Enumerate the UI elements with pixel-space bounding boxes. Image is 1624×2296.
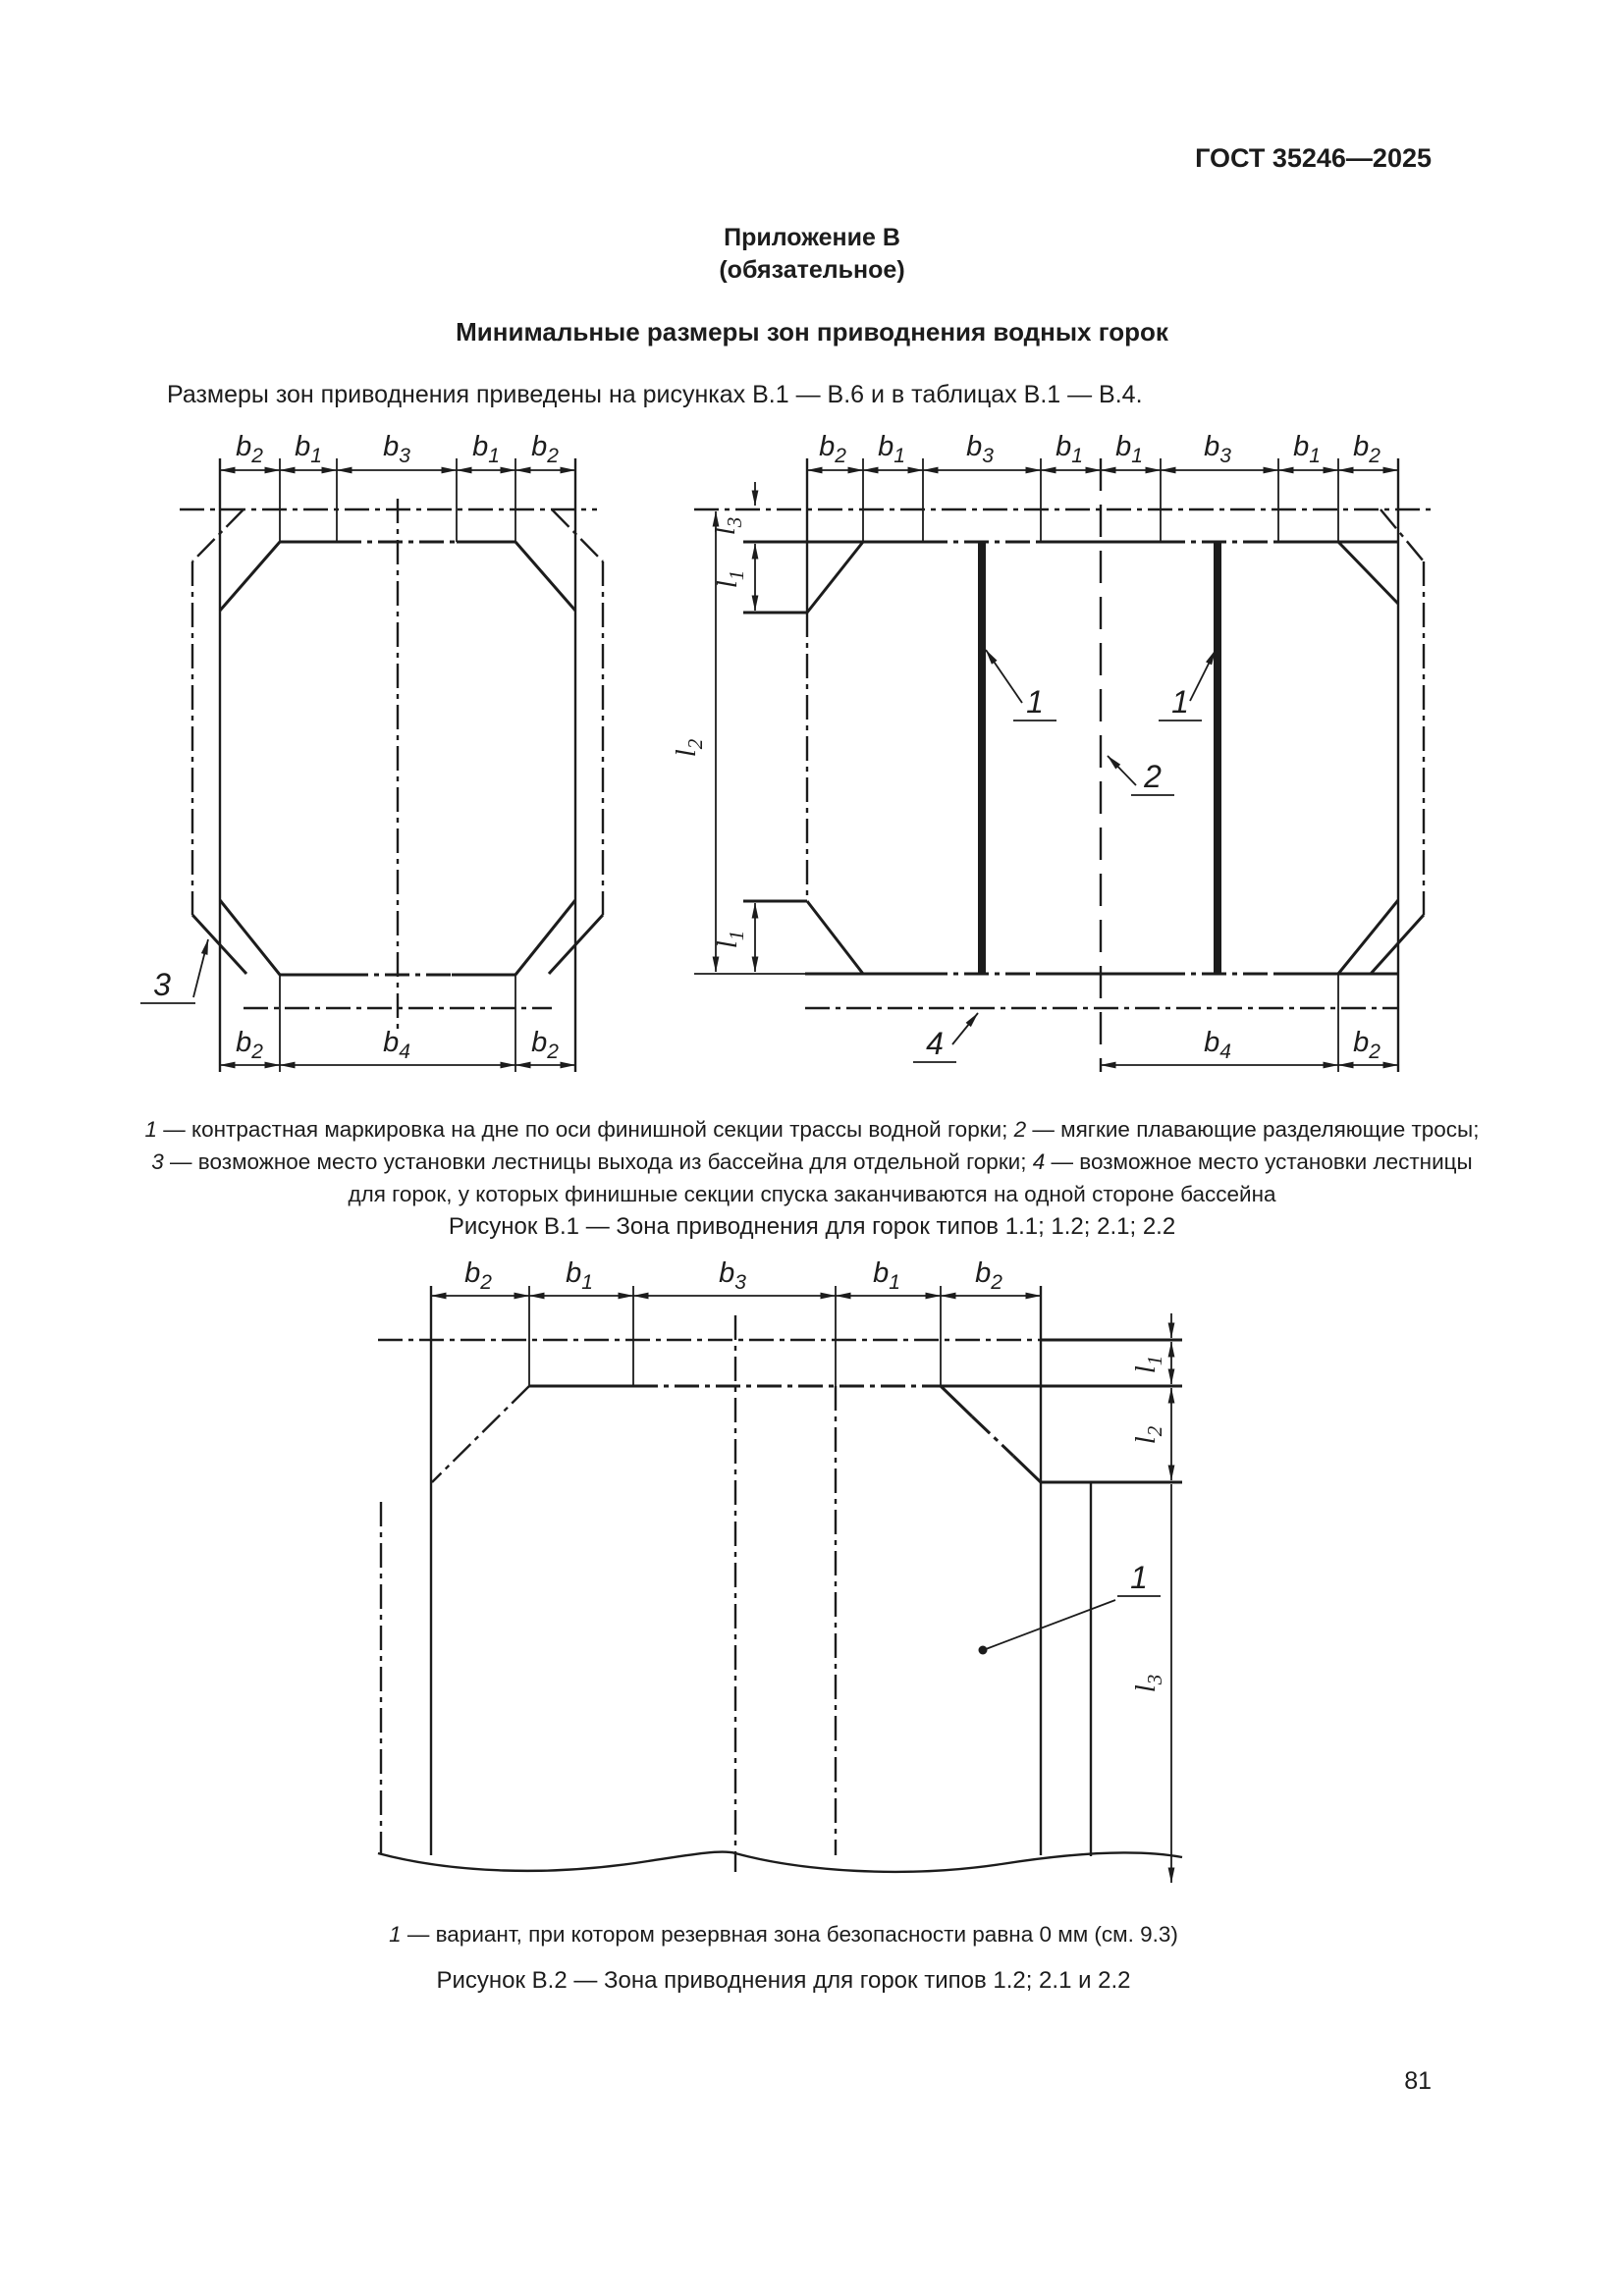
dim-label-b1: b1 xyxy=(1293,431,1321,467)
callout-1-label: 1 xyxy=(1171,684,1189,720)
document-page: ГОСТ 35246—2025 Приложение В (обязательн… xyxy=(0,0,1624,2296)
dim-label-b3: b3 xyxy=(966,431,994,467)
legend-line: для горок, у которых финишные секции спу… xyxy=(0,1178,1624,1210)
dim-label-b1: b1 xyxy=(878,431,905,467)
dim-label-b2: b2 xyxy=(236,431,263,467)
dim-label-l3: l3 xyxy=(1130,1675,1166,1693)
dim-label-b2: b2 xyxy=(236,1027,263,1063)
dim-label-b1: b1 xyxy=(295,431,322,467)
page-number: 81 xyxy=(1404,2067,1432,2096)
callout-1-label: 1 xyxy=(1026,684,1044,720)
callout-3-label: 3 xyxy=(153,967,171,1002)
figure-b2-pool-plan: l1 l2 l3 b2 b1 b3 b1 b2 1 xyxy=(378,1257,1182,1883)
figure-b1-legend: 1 — контрастная маркировка на дне по оси… xyxy=(0,1113,1624,1210)
dim-label-l2: l2 xyxy=(671,738,707,757)
figure-b2-legend: 1 — вариант, при котором резервная зона … xyxy=(0,1922,1567,1948)
dim-label-l2: l2 xyxy=(1130,1425,1166,1444)
dim-label-b3: b3 xyxy=(383,431,410,467)
contrast-marking-bar xyxy=(1214,542,1221,974)
dim-label-b3: b3 xyxy=(1204,431,1231,467)
dim-label-b2: b2 xyxy=(531,431,559,467)
dim-label-b1: b1 xyxy=(472,431,500,467)
dim-label-b2: b2 xyxy=(531,1027,559,1063)
dim-label-l1: l1 xyxy=(1130,1356,1166,1374)
figure-b1-left-pool-plan: b2 b1 b3 b1 b2 b2 b4 b2 3 xyxy=(140,431,603,1072)
contrast-marking-bar xyxy=(978,542,986,974)
legend-line: 3 — возможное место установки лестницы в… xyxy=(0,1146,1624,1178)
dim-label-l1: l1 xyxy=(712,931,748,949)
dim-label-b3: b3 xyxy=(719,1257,746,1294)
dim-label-b2: b2 xyxy=(1353,431,1380,467)
legend-line: 1 — контрастная маркировка на дне по оси… xyxy=(0,1113,1624,1146)
dim-label-b4: b4 xyxy=(383,1027,410,1063)
figure-b1-right-pool-plan: b2 b1 b3 b1 b1 b3 b1 b2 b4 b2 l3 l1 l2 l… xyxy=(671,431,1434,1072)
dim-label-b2: b2 xyxy=(975,1257,1002,1294)
figure-b2-caption: Рисунок В.2 — Зона приводнения для горок… xyxy=(0,1967,1567,1995)
dim-label-b2: b2 xyxy=(1353,1027,1380,1063)
dim-label-b1: b1 xyxy=(873,1257,900,1294)
dim-label-b2: b2 xyxy=(819,431,846,467)
callout-2-label: 2 xyxy=(1143,759,1162,794)
callout-4-label: 4 xyxy=(926,1026,944,1061)
dim-label-b4: b4 xyxy=(1204,1027,1231,1063)
dim-label-l1: l1 xyxy=(712,570,748,589)
figure-b1-caption: Рисунок В.1 — Зона приводнения для горок… xyxy=(0,1213,1624,1241)
dim-label-b1: b1 xyxy=(566,1257,593,1294)
dim-label-b1: b1 xyxy=(1115,431,1143,467)
dim-label-b2: b2 xyxy=(464,1257,492,1294)
callout-1-label: 1 xyxy=(1130,1560,1148,1595)
dim-label-b1: b1 xyxy=(1056,431,1083,467)
